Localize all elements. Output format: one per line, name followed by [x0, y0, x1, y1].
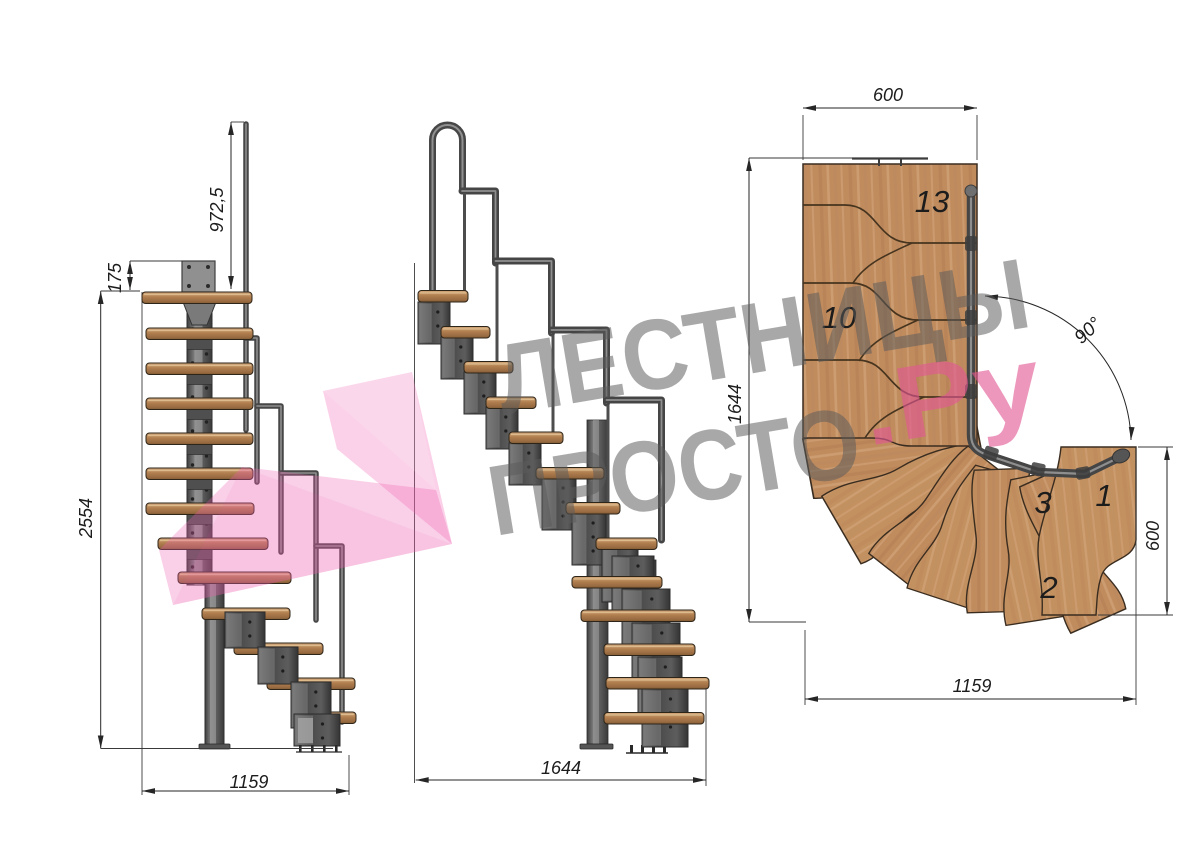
svg-text:90°: 90° — [1071, 313, 1107, 348]
svg-text:13: 13 — [915, 184, 949, 219]
svg-text:1: 1 — [1095, 478, 1112, 513]
svg-text:1159: 1159 — [953, 676, 992, 696]
svg-text:175: 175 — [105, 262, 125, 293]
svg-text:2554: 2554 — [76, 498, 96, 539]
svg-text:972,5: 972,5 — [207, 186, 227, 232]
svg-text:3: 3 — [1034, 485, 1051, 520]
svg-text:2: 2 — [1039, 570, 1057, 605]
svg-text:600: 600 — [873, 85, 903, 105]
svg-text:600: 600 — [1143, 521, 1163, 551]
svg-text:1159: 1159 — [230, 772, 269, 792]
svg-text:1644: 1644 — [541, 758, 581, 778]
